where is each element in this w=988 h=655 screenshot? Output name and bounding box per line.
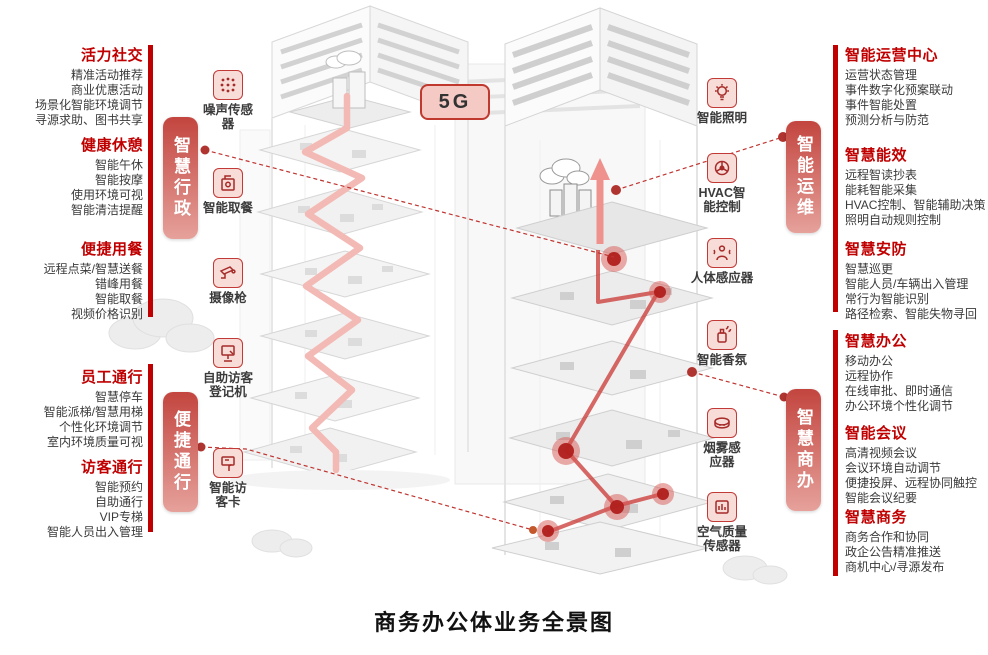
panel-item: 智能人员/车辆出入管理 [845, 277, 988, 292]
sensor-cctv: 摄像枪 [193, 258, 263, 305]
panel-heading: 智慧办公 [845, 330, 988, 351]
panel-item: 错峰用餐 [5, 277, 143, 292]
panel-item: 移动办公 [845, 354, 988, 369]
panel-smart-meeting: 智能会议 高清视频会议 会议环境自动调节 便捷投屏、远程协同触控 智能会议纪要 [845, 422, 988, 506]
panel-smart-business: 智慧商务 商务合作和协同 政企公告精准推送 商机中心/寻源发布 [845, 506, 988, 575]
panel-item: 商机中心/寻源发布 [845, 560, 988, 575]
panel-item: 智能取餐 [5, 292, 143, 307]
panel-item: 在线审批、即时通信 [845, 384, 988, 399]
visitor-card-icon [213, 448, 243, 478]
panel-item: HVAC控制、智能辅助决策 [845, 198, 988, 213]
panel-item: 常行为智能识别 [845, 292, 988, 307]
sensor-label: 人体感应器 [691, 271, 754, 285]
panel-visitor-access: 访客通行 智能预约 自助通行 VIP专梯 智能人员出入管理 [5, 456, 143, 540]
right-top-divider-bar [833, 45, 838, 312]
panel-item: 远程协作 [845, 369, 988, 384]
panel-heading: 智能运营中心 [845, 44, 988, 65]
panel-smart-office: 智慧办公 移动办公 远程协作 在线审批、即时通信 办公环境个性化调节 [845, 330, 988, 414]
panel-item: 远程点菜/智慧送餐 [5, 262, 143, 277]
panel-item: 寻源求助、图书共享 [5, 113, 143, 128]
panel-heading: 便捷用餐 [5, 238, 143, 259]
panel-item: 商业优惠活动 [5, 83, 143, 98]
panel-heading: 智慧商务 [845, 506, 988, 527]
badge-5g: 5G [420, 84, 490, 120]
sensor-label: HVAC智 能控制 [699, 186, 746, 214]
panel-item: 自助通行 [5, 495, 143, 510]
sensor-label: 智能香氛 [697, 353, 747, 367]
food-pickup-icon [213, 168, 243, 198]
panel-heading: 智能会议 [845, 422, 988, 443]
sensor-label: 智能照明 [697, 111, 747, 125]
panel-item: 个性化环境调节 [5, 420, 143, 435]
panel-heading: 智慧能效 [845, 144, 988, 165]
sensor-food-pickup: 智能取餐 [193, 168, 263, 215]
panel-item: 远程智读抄表 [845, 168, 988, 183]
panel-operation-center: 智能运营中心 运营状态管理 事件数字化预案联动 事件智能处置 预测分析与防范 [845, 44, 988, 128]
panel-item: 办公环境个性化调节 [845, 399, 988, 414]
panel-item: 智能派梯/智慧用梯 [5, 405, 143, 420]
human-sensor-icon [707, 238, 737, 268]
business-office-panorama: 活力社交 精准活动推荐 商业优惠活动 场景化智能环境调节 寻源求助、图书共享 健… [0, 0, 988, 655]
panel-convenient-dining: 便捷用餐 远程点菜/智慧送餐 错峰用餐 智能取餐 视频价格识别 [5, 238, 143, 322]
sensor-label: 摄像枪 [209, 291, 247, 305]
sensor-label: 噪声传感 器 [203, 103, 253, 131]
sensor-visitor-kiosk: 自助访客 登记机 [193, 338, 263, 399]
panel-item: 智能午休 [5, 158, 143, 173]
hvac-control-icon [707, 153, 737, 183]
panel-item: 能耗智能采集 [845, 183, 988, 198]
panel-item: 预测分析与防范 [845, 113, 988, 128]
panel-item: 使用环境可视 [5, 188, 143, 203]
sensor-human: 人体感应器 [687, 238, 757, 285]
panel-item: 智慧停车 [5, 390, 143, 405]
air-quality-sensor-icon [707, 492, 737, 522]
smoke-sensor-icon [707, 408, 737, 438]
panel-heading: 访客通行 [5, 456, 143, 477]
panel-item: 场景化智能环境调节 [5, 98, 143, 113]
panel-item: 精准活动推荐 [5, 68, 143, 83]
panel-item: 照明自动规则控制 [845, 213, 988, 228]
sensor-air-quality: 空气质量 传感器 [687, 492, 757, 553]
panel-item: 便捷投屏、远程协同触控 [845, 476, 988, 491]
sensor-noise: 噪声传感 器 [193, 70, 263, 131]
visitor-kiosk-icon [213, 338, 243, 368]
sensor-visitor-card: 智能访 客卡 [193, 448, 263, 509]
panel-item: 智能预约 [5, 480, 143, 495]
panel-item: 政企公告精准推送 [845, 545, 988, 560]
panel-smart-energy: 智慧能效 远程智读抄表 能耗智能采集 HVAC控制、智能辅助决策 照明自动规则控… [845, 144, 988, 228]
panel-item: 商务合作和协同 [845, 530, 988, 545]
panel-item: 智能人员出入管理 [5, 525, 143, 540]
noise-sensor-icon [213, 70, 243, 100]
left-bottom-divider-bar [148, 364, 153, 532]
panel-employee-access: 员工通行 智慧停车 智能派梯/智慧用梯 个性化环境调节 室内环境质量可视 [5, 366, 143, 450]
cctv-camera-icon [213, 258, 243, 288]
panel-item: 高清视频会议 [845, 446, 988, 461]
sensor-label: 自助访客 登记机 [203, 371, 253, 399]
scent-diffuser-icon [707, 320, 737, 350]
panel-heading: 员工通行 [5, 366, 143, 387]
sensor-label: 烟雾感 应器 [703, 441, 741, 469]
sensor-smoke: 烟雾感 应器 [687, 408, 757, 469]
panel-item: 室内环境质量可视 [5, 435, 143, 450]
panel-vitality-social: 活力社交 精准活动推荐 商业优惠活动 场景化智能环境调节 寻源求助、图书共享 [5, 44, 143, 128]
panel-heading: 健康休憩 [5, 134, 143, 155]
left-top-divider-bar [148, 45, 153, 317]
sensor-label: 智能访 客卡 [209, 481, 247, 509]
panel-smart-security: 智慧安防 智慧巡更 智能人员/车辆出入管理 常行为智能识别 路径检索、智能失物寻… [845, 238, 988, 322]
panel-item: 智能按摩 [5, 173, 143, 188]
tag-smart-operation: 智能运维 [786, 121, 821, 233]
panel-heading: 活力社交 [5, 44, 143, 65]
panel-item: 智能会议纪要 [845, 491, 988, 506]
page-title: 商务办公体业务全景图 [0, 605, 988, 637]
panel-item: 视频价格识别 [5, 307, 143, 322]
panel-item: 事件数字化预案联动 [845, 83, 988, 98]
sensor-scent: 智能香氛 [687, 320, 757, 367]
panel-item: 智慧巡更 [845, 262, 988, 277]
tower-base-shadow [230, 470, 450, 490]
tag-smart-commerce: 智慧商办 [786, 389, 821, 511]
sensor-hvac: HVAC智 能控制 [687, 153, 757, 214]
right-bottom-divider-bar [833, 330, 838, 576]
panel-item: 会议环境自动调节 [845, 461, 988, 476]
panel-heading: 智慧安防 [845, 238, 988, 259]
panel-item: 路径检索、智能失物寻回 [845, 307, 988, 322]
panel-item: 智能清洁提醒 [5, 203, 143, 218]
panel-healthy-rest: 健康休憩 智能午休 智能按摩 使用环境可视 智能清洁提醒 [5, 134, 143, 218]
panel-item: 事件智能处置 [845, 98, 988, 113]
panel-item: VIP专梯 [5, 510, 143, 525]
sensor-label: 空气质量 传感器 [697, 525, 747, 553]
smart-lighting-icon [707, 78, 737, 108]
sensor-lighting: 智能照明 [687, 78, 757, 125]
panel-item: 运营状态管理 [845, 68, 988, 83]
sensor-label: 智能取餐 [203, 201, 253, 215]
